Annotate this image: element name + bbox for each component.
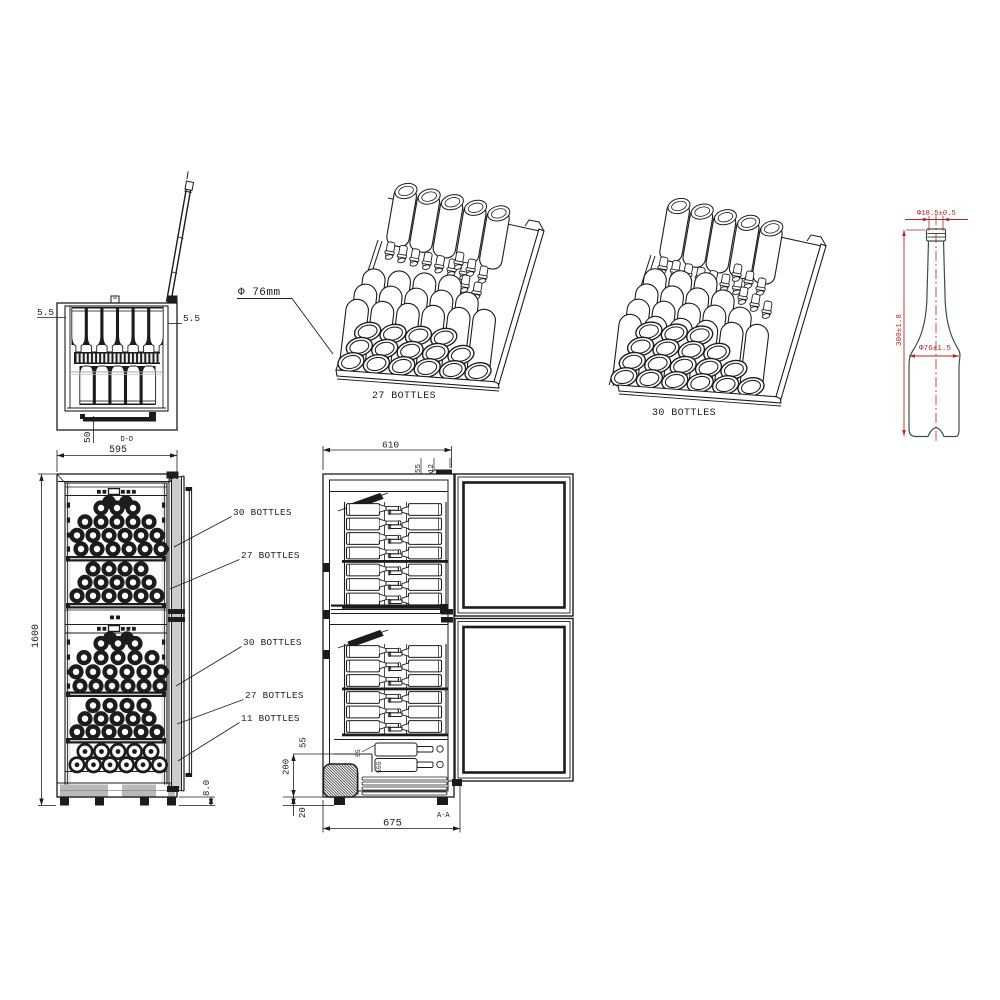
svg-text:5.5: 5.5 bbox=[37, 307, 54, 318]
svg-text:555: 555 bbox=[376, 761, 383, 773]
svg-text:30 BOTTLES: 30 BOTTLES bbox=[243, 637, 302, 648]
svg-text:8.0: 8.0 bbox=[202, 780, 212, 796]
svg-text:55: 55 bbox=[355, 749, 362, 757]
svg-text:30 BOTTLES: 30 BOTTLES bbox=[233, 507, 292, 518]
svg-text:595: 595 bbox=[109, 445, 127, 456]
svg-text:27 BOTTLES: 27 BOTTLES bbox=[241, 550, 300, 561]
svg-text:11 BOTTLES: 11 BOTTLES bbox=[241, 713, 300, 724]
svg-text:1600: 1600 bbox=[31, 624, 42, 648]
svg-text:27 BOTTLES: 27 BOTTLES bbox=[372, 391, 436, 402]
svg-text:610: 610 bbox=[382, 440, 399, 451]
svg-text:20: 20 bbox=[298, 807, 308, 818]
svg-text:30 BOTTLES: 30 BOTTLES bbox=[652, 408, 716, 419]
svg-text:A-A: A-A bbox=[437, 812, 450, 820]
svg-text:12: 12 bbox=[428, 464, 436, 473]
svg-text:Φ18.5±0.5: Φ18.5±0.5 bbox=[917, 210, 956, 218]
svg-text:300±1.8: 300±1.8 bbox=[896, 314, 904, 346]
svg-text:5.5: 5.5 bbox=[183, 313, 200, 324]
svg-text:200: 200 bbox=[282, 759, 292, 775]
svg-text:50: 50 bbox=[82, 431, 93, 443]
svg-text:675: 675 bbox=[383, 818, 402, 830]
svg-text:Φ76±1.5: Φ76±1.5 bbox=[919, 345, 951, 353]
svg-text:55: 55 bbox=[299, 737, 309, 748]
svg-text:55: 55 bbox=[415, 463, 423, 473]
svg-text:Φ 76mm: Φ 76mm bbox=[238, 287, 281, 299]
svg-text:27 BOTTLES: 27 BOTTLES bbox=[245, 690, 304, 701]
svg-text:D-D: D-D bbox=[121, 436, 134, 444]
